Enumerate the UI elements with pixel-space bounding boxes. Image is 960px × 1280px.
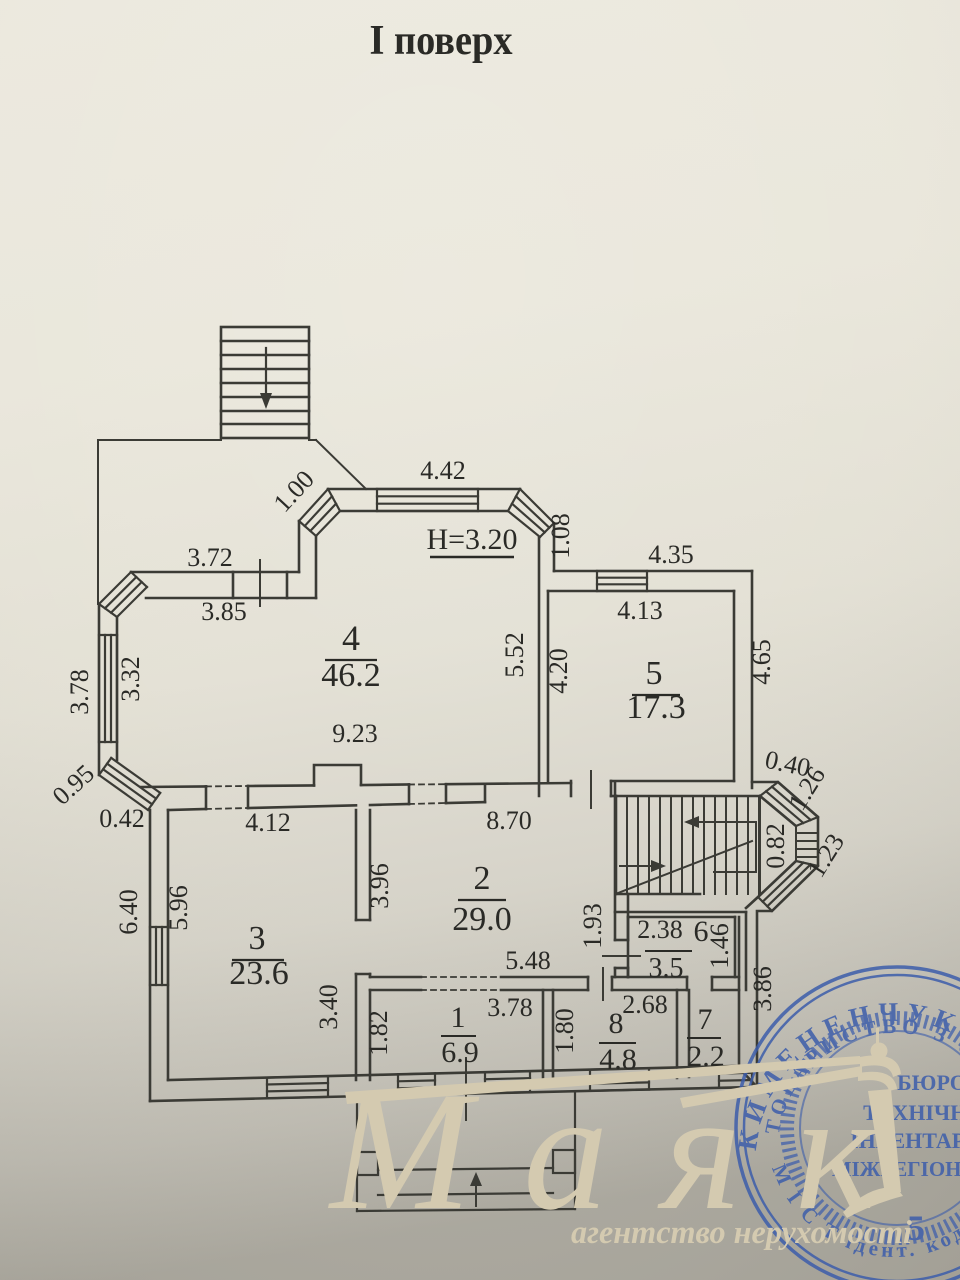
svg-text:1.82: 1.82 (364, 1010, 393, 1056)
svg-text:6.40: 6.40 (114, 889, 143, 935)
svg-text:3.86: 3.86 (748, 966, 777, 1012)
svg-text:2.68: 2.68 (622, 990, 668, 1019)
svg-text:БЮРО: БЮРО (897, 1070, 960, 1095)
svg-text:3.5: 3.5 (649, 953, 684, 984)
svg-text:3.78: 3.78 (487, 993, 533, 1022)
svg-text:1.46: 1.46 (705, 923, 734, 969)
svg-text:3.72: 3.72 (187, 543, 233, 572)
svg-text:8: 8 (609, 1007, 624, 1040)
svg-text:5.52: 5.52 (500, 632, 529, 678)
svg-text:5.96: 5.96 (164, 885, 193, 931)
svg-text:4.42: 4.42 (420, 456, 466, 485)
svg-text:2: 2 (474, 860, 491, 897)
svg-text:5: 5 (646, 655, 663, 692)
svg-text:І поверх: І поверх (370, 18, 513, 64)
svg-text:3.32: 3.32 (116, 656, 145, 702)
svg-text:2.38: 2.38 (637, 915, 683, 944)
svg-text:1: 1 (451, 1001, 466, 1034)
svg-text:4.35: 4.35 (648, 540, 694, 569)
svg-text:3.85: 3.85 (201, 597, 247, 626)
svg-text:9.23: 9.23 (332, 719, 378, 748)
svg-text:23.6: 23.6 (229, 955, 289, 992)
svg-text:7: 7 (698, 1003, 713, 1036)
svg-text:29.0: 29.0 (452, 901, 512, 938)
svg-text:4: 4 (342, 618, 360, 658)
svg-text:3.96: 3.96 (365, 863, 394, 909)
svg-text:агентство нерухомості: агентство нерухомості (571, 1215, 913, 1251)
svg-text:5.48: 5.48 (505, 946, 551, 975)
svg-text:8.70: 8.70 (486, 806, 532, 835)
svg-text:1.93: 1.93 (578, 903, 607, 949)
svg-text:H=3.20: H=3.20 (426, 523, 517, 556)
svg-text:3.78: 3.78 (65, 669, 94, 715)
svg-text:46.2: 46.2 (321, 657, 381, 694)
svg-text:0.42: 0.42 (99, 804, 145, 833)
svg-text:4.20: 4.20 (544, 648, 573, 694)
svg-text:0.82: 0.82 (761, 823, 790, 869)
svg-text:1.80: 1.80 (550, 1008, 579, 1054)
svg-text:4.12: 4.12 (245, 808, 291, 837)
svg-text:17.3: 17.3 (626, 689, 686, 726)
svg-text:4.65: 4.65 (747, 639, 776, 685)
svg-text:3.40: 3.40 (314, 984, 343, 1030)
svg-text:4.13: 4.13 (617, 596, 663, 625)
svg-text:1.08: 1.08 (546, 513, 575, 559)
svg-text:3: 3 (249, 920, 266, 957)
